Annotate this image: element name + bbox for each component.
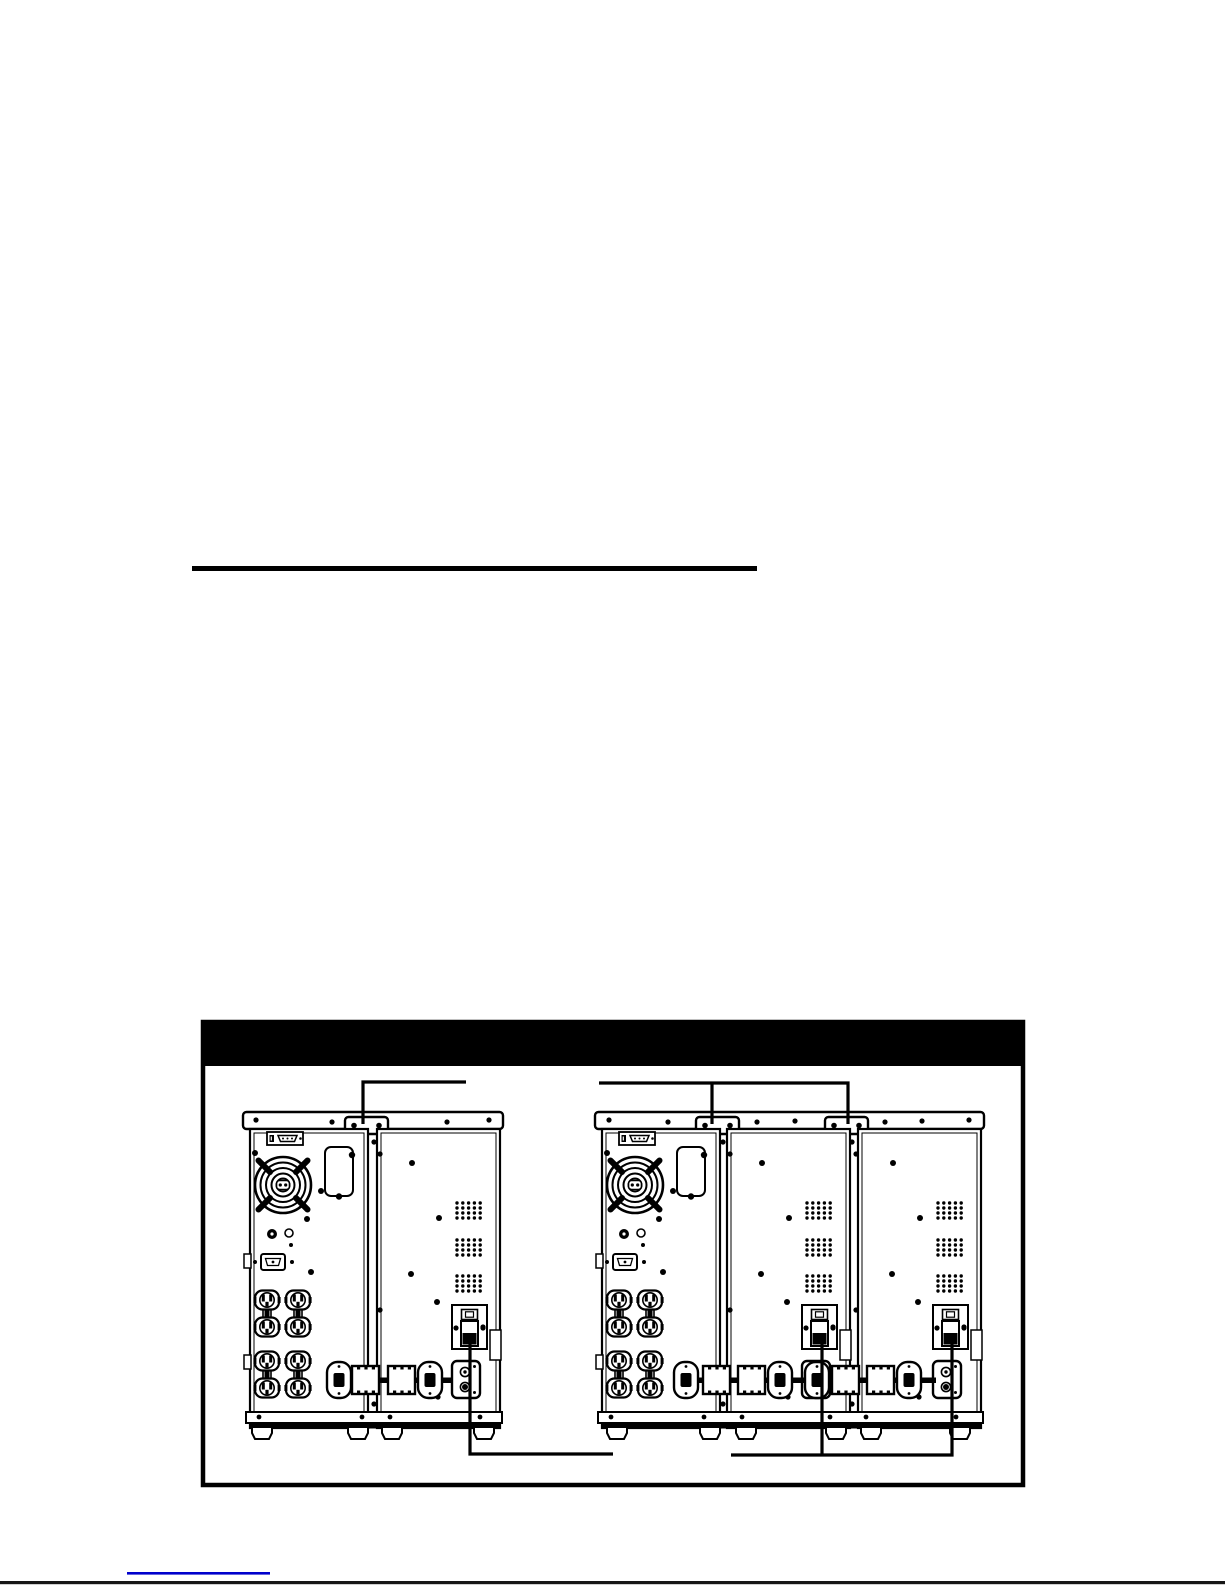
top-cap [595, 1112, 984, 1129]
installation-diagram [201, 1020, 1025, 1485]
foot [348, 1427, 368, 1439]
battery-cable-connector [832, 1366, 859, 1394]
foot [252, 1427, 272, 1439]
ups-unit [596, 1129, 720, 1428]
foot [700, 1427, 720, 1439]
foot [607, 1427, 627, 1439]
ups-with-two-battery-packs [595, 1112, 984, 1439]
battery-cable-connector [352, 1366, 379, 1394]
scanned-manual-page [0, 0, 1225, 1585]
foot [861, 1427, 881, 1439]
battery-cable-connector [867, 1366, 894, 1394]
battery-cable-connector [738, 1366, 765, 1394]
battery-cable-connector [805, 1362, 829, 1398]
battery-cable-connector [897, 1362, 921, 1398]
section-divider-rule [192, 566, 757, 571]
battery-cable-connector [768, 1362, 792, 1398]
battery-cable-connector [388, 1366, 415, 1394]
battery-cable-connector [418, 1362, 442, 1398]
foot [382, 1427, 402, 1439]
battery-cable-connector [703, 1366, 730, 1394]
foot [826, 1427, 846, 1439]
battery-cable-connector [674, 1362, 698, 1398]
figure-title-bar [201, 1020, 1025, 1066]
foot [736, 1427, 756, 1439]
document-page [0, 0, 1225, 1585]
foot [474, 1427, 494, 1439]
footer-link-underline[interactable] [127, 1572, 270, 1575]
battery-cable-chain [327, 1362, 453, 1398]
battery-cable-connector [327, 1362, 351, 1398]
page-bottom-edge [0, 1581, 1225, 1584]
